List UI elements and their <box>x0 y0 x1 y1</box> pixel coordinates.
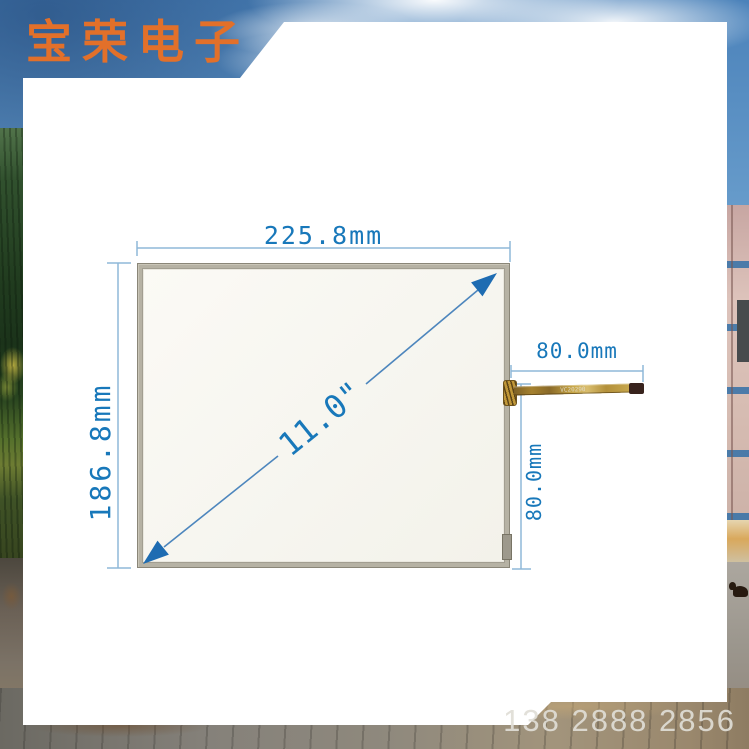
diagonal-segment-lower <box>164 456 278 547</box>
product-image: 宝荣电子 225.8mm 186.8mm <box>0 0 749 749</box>
phone-number-text: 138 2888 2856 <box>503 703 736 739</box>
height-dimension-label: 186.8mm <box>84 341 114 563</box>
dimension-lines <box>107 241 643 569</box>
diagonal-segment-upper <box>366 290 478 384</box>
cable-connector-tip <box>629 383 644 394</box>
cable-length-dimension-label: 80.0mm <box>509 339 645 363</box>
arrowhead-bottom-left <box>143 541 169 564</box>
cable-marking-text: VC20290 <box>560 386 585 393</box>
cable-offset-dimension-label: 80.0mm <box>522 382 548 582</box>
width-dimension-label: 225.8mm <box>137 221 510 250</box>
